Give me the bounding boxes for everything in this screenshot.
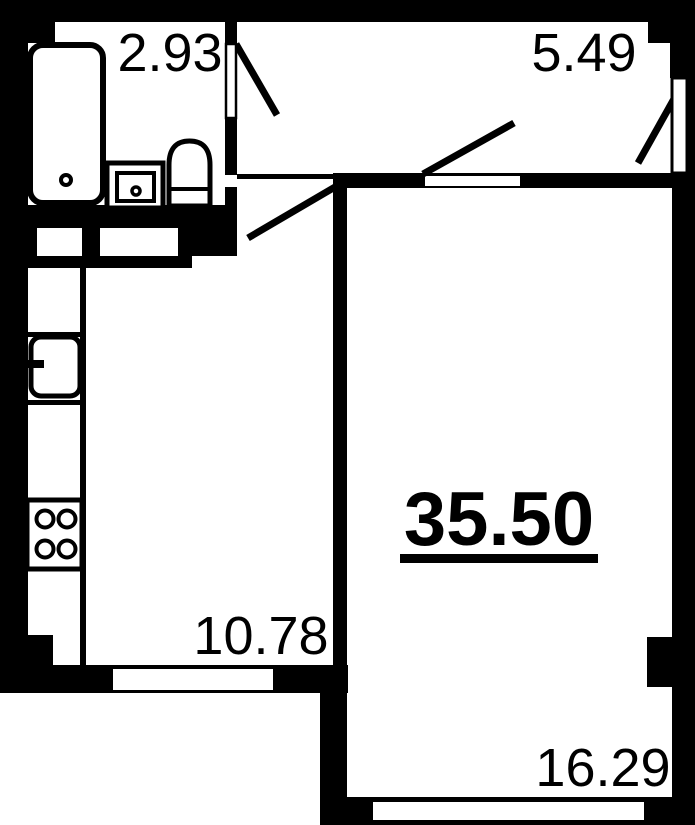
bathroom-door-leaf	[226, 44, 236, 118]
floor-plan: 2.93 5.49 10.78 16.29 35.50	[0, 0, 695, 825]
kitchen-area-label: 10.78	[193, 606, 328, 666]
wall-bathroom-right-upper	[225, 22, 237, 44]
kitchen-counter-divider-bottom	[27, 400, 86, 405]
hallway-area-label: 5.49	[531, 23, 636, 83]
kitchen-counter-edge-line	[80, 268, 86, 665]
stove-burner	[37, 511, 54, 528]
total-area-label: 35.50	[404, 477, 594, 562]
stove-burner	[37, 541, 54, 558]
stove	[27, 500, 82, 569]
wall-left	[0, 0, 28, 693]
bathroom-area-label: 2.93	[117, 23, 222, 83]
kitchen-door-lintel-line	[237, 174, 335, 179]
living-room-area-label: 16.29	[535, 738, 670, 798]
wall-bathroom-right-mid	[225, 118, 237, 175]
wall-corner-bathroom	[28, 22, 55, 43]
living-room-door-opening	[425, 176, 520, 186]
stove-burner	[59, 511, 76, 528]
entrance-door-leaf	[672, 78, 687, 173]
wall-service-block-lower	[0, 256, 192, 268]
wall-top	[0, 0, 695, 22]
duct-niche-large	[100, 228, 178, 256]
bathtub-drain	[61, 175, 71, 185]
wall-pier-right	[647, 637, 672, 687]
kitchen-window	[113, 669, 273, 690]
wall-right-lower	[672, 173, 695, 825]
duct-niche-small	[37, 228, 82, 256]
bathroom-sink-drain	[132, 187, 140, 195]
living-room-window	[373, 802, 644, 820]
total-area-underline	[400, 554, 598, 563]
wall-bathroom-right-lower	[225, 187, 237, 207]
toilet	[169, 141, 210, 206]
kitchen-sink-tap	[25, 360, 44, 368]
wall-middle-vertical	[333, 188, 347, 665]
wall-right-upper	[670, 22, 695, 78]
stove-burner	[59, 541, 76, 558]
floor-plan-canvas: 2.93 5.49 10.78 16.29 35.50	[0, 0, 695, 825]
wall-kitchen-step	[27, 635, 53, 665]
